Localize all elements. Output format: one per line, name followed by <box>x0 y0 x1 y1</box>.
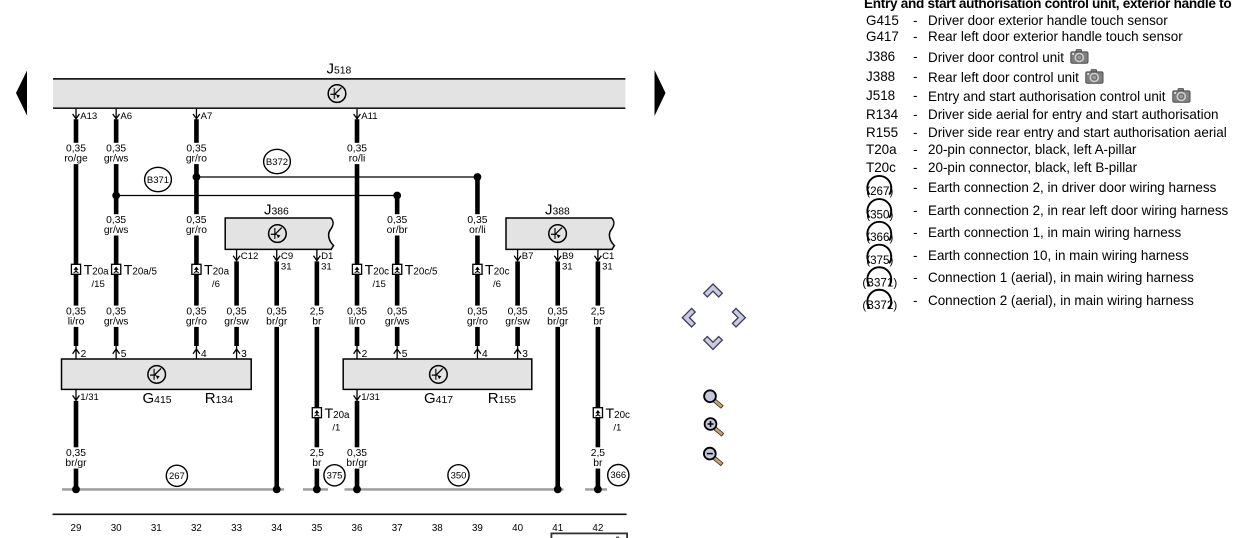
svg-text:gr/ws: gr/ws <box>385 316 410 327</box>
svg-text:5: 5 <box>402 349 408 360</box>
svg-text:1/31: 1/31 <box>361 392 380 403</box>
svg-text:R155: R155 <box>488 390 516 407</box>
svg-text:gr/ws: gr/ws <box>104 225 129 236</box>
svg-text:/15: /15 <box>373 279 386 290</box>
svg-text:375: 375 <box>327 470 343 481</box>
svg-text:li/ro: li/ro <box>349 316 366 327</box>
svg-text:39: 39 <box>472 523 483 534</box>
svg-text:31: 31 <box>321 261 332 272</box>
svg-text:A6: A6 <box>120 111 132 122</box>
svg-text:gr/ws: gr/ws <box>104 154 129 165</box>
svg-text:(B372): (B372) <box>862 299 897 312</box>
svg-text:T20c/5: T20c/5 <box>405 263 438 279</box>
svg-text:42: 42 <box>592 523 603 534</box>
svg-text:4: 4 <box>482 349 488 360</box>
svg-text:34: 34 <box>271 523 282 534</box>
svg-text:/15: /15 <box>92 279 105 290</box>
svg-text:A7: A7 <box>201 111 213 122</box>
svg-text:350: 350 <box>451 470 467 481</box>
svg-text:gr/ro: gr/ro <box>186 225 207 236</box>
svg-text:J518: J518 <box>327 61 352 78</box>
svg-text:/6: /6 <box>212 279 220 290</box>
svg-text:br/gr: br/gr <box>346 458 368 469</box>
svg-text:38: 38 <box>432 523 443 534</box>
svg-text:or/li: or/li <box>469 225 486 236</box>
svg-text:C9: C9 <box>281 251 293 262</box>
svg-text:gr/sw: gr/sw <box>505 316 530 327</box>
svg-text:5: 5 <box>121 349 127 360</box>
svg-text:J388: J388 <box>545 202 570 219</box>
svg-text:gr/sw: gr/sw <box>224 316 249 327</box>
svg-text:2: 2 <box>81 349 87 360</box>
svg-text:31: 31 <box>151 523 162 534</box>
svg-text:gr/ws: gr/ws <box>104 316 129 327</box>
svg-text:366: 366 <box>610 470 626 481</box>
svg-text:B372: B372 <box>266 157 288 168</box>
svg-text:li/ro: li/ro <box>68 316 85 327</box>
svg-text:T20a: T20a <box>204 263 230 279</box>
svg-text:gr/ro: gr/ro <box>186 316 207 327</box>
svg-text:C1: C1 <box>602 251 614 262</box>
svg-text:(B371): (B371) <box>862 277 897 290</box>
svg-text:R134: R134 <box>205 390 233 407</box>
svg-text:br: br <box>312 316 322 327</box>
svg-text:br: br <box>593 316 603 327</box>
svg-text:(375): (375) <box>866 254 893 267</box>
svg-text:/1: /1 <box>332 423 340 434</box>
svg-text:T20a: T20a <box>324 406 350 422</box>
svg-text:br/gr: br/gr <box>547 316 569 327</box>
svg-text:(366): (366) <box>866 231 893 244</box>
svg-text:41: 41 <box>552 523 563 534</box>
svg-text:4: 4 <box>201 349 207 360</box>
svg-text:267: 267 <box>169 471 185 482</box>
svg-text:33: 33 <box>231 523 242 534</box>
svg-text:32: 32 <box>191 523 202 534</box>
svg-text:37: 37 <box>392 523 403 534</box>
svg-text:T20a: T20a <box>84 263 110 279</box>
svg-text:gr/ro: gr/ro <box>186 154 207 165</box>
svg-text:31: 31 <box>281 261 292 272</box>
svg-text:B371: B371 <box>147 175 169 186</box>
svg-text:br/gr: br/gr <box>65 458 87 469</box>
svg-text:2: 2 <box>362 349 368 360</box>
svg-text:C12: C12 <box>241 251 259 262</box>
svg-text:31: 31 <box>562 261 573 272</box>
svg-text:J386: J386 <box>264 202 289 219</box>
svg-text:or/br: or/br <box>387 225 409 236</box>
svg-text:G417: G417 <box>424 390 453 407</box>
svg-text:G415: G415 <box>143 390 172 407</box>
svg-text:br: br <box>593 458 603 469</box>
svg-text:31: 31 <box>602 261 613 272</box>
svg-text:T20c: T20c <box>485 263 510 279</box>
svg-text:br: br <box>312 458 322 469</box>
svg-text:3: 3 <box>522 349 528 360</box>
svg-text:36: 36 <box>352 523 363 534</box>
svg-text:40: 40 <box>512 523 523 534</box>
svg-text:ro/ge: ro/ge <box>64 154 88 165</box>
svg-text:T20c: T20c <box>365 263 390 279</box>
svg-text:3: 3 <box>241 349 247 360</box>
svg-text:T20c: T20c <box>605 406 630 422</box>
svg-text:35: 35 <box>311 523 322 534</box>
svg-text:A11: A11 <box>361 111 377 122</box>
svg-text:br/gr: br/gr <box>266 316 288 327</box>
svg-text:B7: B7 <box>522 251 534 262</box>
svg-text:B9: B9 <box>562 251 574 262</box>
svg-text:D1: D1 <box>321 251 333 262</box>
svg-text:30: 30 <box>111 523 122 534</box>
svg-text:1/31: 1/31 <box>80 392 99 403</box>
svg-text:/1: /1 <box>613 423 621 434</box>
svg-text:(267): (267) <box>866 185 893 198</box>
svg-text:A13: A13 <box>80 111 97 122</box>
svg-text:(350): (350) <box>866 208 893 221</box>
svg-text:gr/ro: gr/ro <box>467 316 488 327</box>
svg-text:/6: /6 <box>493 279 501 290</box>
svg-text:T20a/5: T20a/5 <box>124 263 158 279</box>
svg-text:ro/li: ro/li <box>349 154 366 165</box>
svg-text:29: 29 <box>71 523 82 534</box>
